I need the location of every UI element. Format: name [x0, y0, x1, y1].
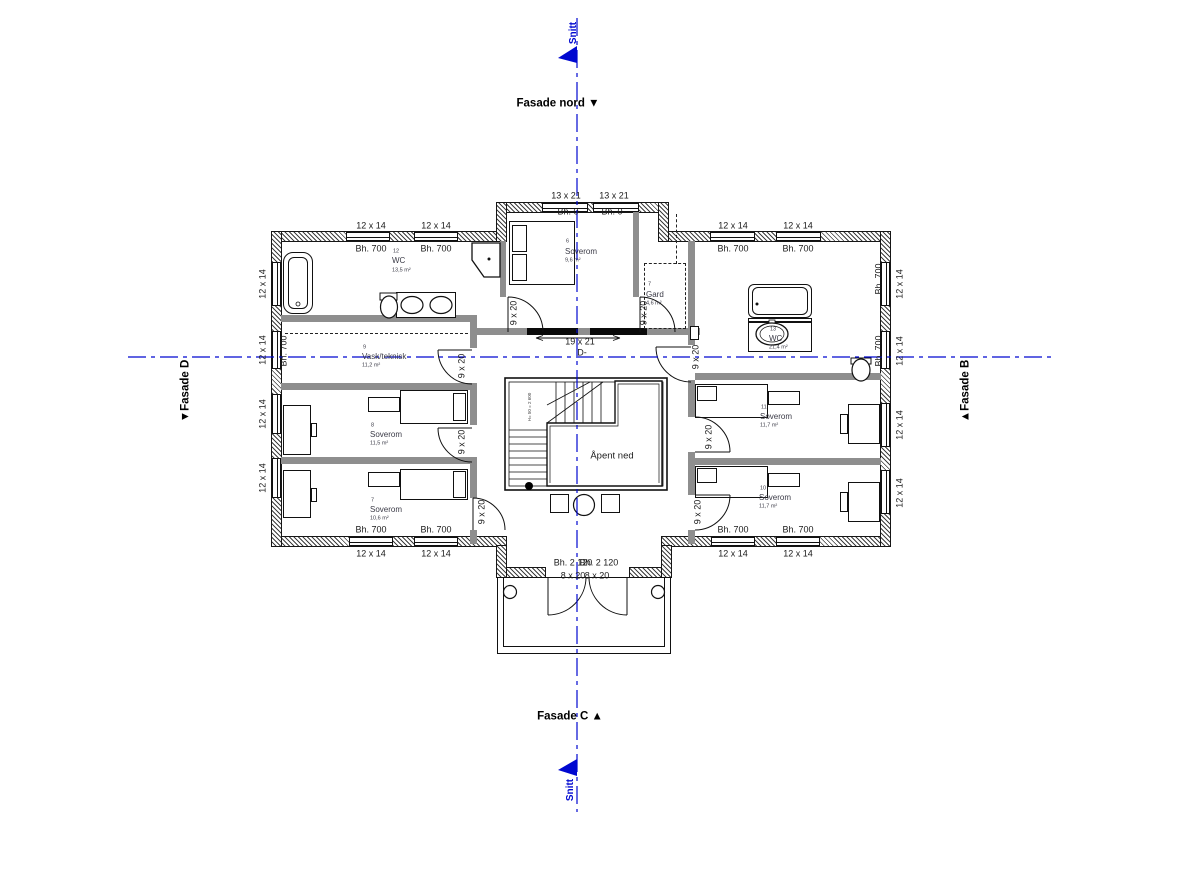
wall-interior	[688, 452, 695, 495]
window	[776, 537, 820, 546]
dim-sill: Bh. 700	[717, 245, 748, 254]
bathtub-inner	[288, 257, 308, 309]
wall-exterior	[497, 203, 506, 241]
room-area: 4,6 m²	[646, 301, 662, 307]
sliding-door-panel	[527, 328, 578, 335]
window	[349, 537, 393, 546]
dim-door: 9 x 20	[692, 345, 701, 370]
label-fasade-nord: Fasade nord ▼	[517, 98, 600, 110]
dim-window: 12 x 14	[896, 410, 905, 440]
nightstand	[368, 472, 400, 487]
wall-interior	[695, 373, 881, 380]
wall-exterior	[662, 546, 671, 577]
window	[881, 470, 890, 514]
room-name: Soverom	[759, 494, 791, 502]
dim-sill: Bh. 700	[355, 245, 386, 254]
label-stair-note: H= 50 = 2 600	[528, 393, 533, 422]
room-number: 6	[566, 239, 569, 245]
sliding-door-panel	[590, 328, 647, 335]
wall-interior	[633, 212, 639, 297]
vanity-double	[396, 292, 456, 318]
window	[414, 232, 458, 241]
label-apent-ned: Åpent ned	[590, 451, 633, 461]
dim-window: 13 x 21	[551, 192, 581, 201]
dim-window: 12 x 14	[718, 222, 748, 231]
stair-treads	[509, 382, 603, 479]
window	[711, 537, 755, 546]
window	[272, 262, 281, 306]
dim-window: 12 x 14	[783, 550, 813, 559]
wall-interior	[281, 383, 470, 390]
dim-door: 8 x 20	[561, 572, 586, 581]
label-fasade-b: ▲Fasade B	[960, 360, 972, 423]
dim-window: 12 x 14	[896, 336, 905, 366]
dresser-knob	[311, 488, 317, 502]
radiator	[690, 326, 699, 340]
dim-opening: 19 x 21	[565, 338, 595, 347]
wall-exterior	[659, 203, 668, 241]
nightstand	[768, 391, 800, 405]
dim-door: 9 x 20	[458, 354, 467, 379]
dim-sill: Bh. 0	[601, 208, 622, 217]
dim-window: 12 x 14	[896, 478, 905, 508]
window	[272, 458, 281, 498]
dim-door: 9 x 20	[478, 500, 487, 525]
wall-interior	[470, 328, 700, 335]
room-name: Gard	[646, 291, 664, 299]
dim-sill: Bh. 700	[782, 526, 813, 535]
pillow	[453, 471, 466, 498]
pillow	[512, 254, 527, 281]
dim-sill: Bh. 0	[557, 208, 578, 217]
dim-window: 12 x 14	[259, 269, 268, 299]
pillow	[453, 393, 466, 421]
window	[272, 394, 281, 434]
section-arrow-bottom	[558, 759, 577, 776]
plan-overlay	[0, 0, 1184, 876]
room-name: Soverom	[565, 248, 597, 256]
chair	[840, 492, 848, 512]
room-number: 9	[363, 345, 366, 351]
dim-opening-id: D-	[577, 349, 587, 358]
room-area: 11,7 m²	[760, 423, 778, 429]
window	[346, 232, 390, 241]
label-fasade-c: Fasade C ▲	[537, 711, 603, 723]
section-arrow-top	[558, 46, 577, 63]
stool	[601, 494, 620, 513]
floor-plan: Fasade nord ▼Fasade C ▲▼Fasade D▲Fasade …	[0, 0, 1184, 876]
dim-sill: Bh. 700	[782, 245, 813, 254]
dim-sill: Bh. 700	[717, 526, 748, 535]
desk	[848, 482, 880, 522]
wall-interior	[500, 241, 506, 297]
dim-door: 9 x 20	[705, 425, 714, 450]
wall-interior	[470, 530, 477, 544]
dashed-line	[285, 333, 468, 334]
dim-door: 9 x 20	[458, 430, 467, 455]
room-name: Vask/teknisk	[362, 353, 406, 361]
room-area: 13,5 m²	[392, 268, 411, 274]
room-number: 7	[371, 498, 374, 504]
wall-interior	[688, 380, 695, 417]
dim-sill: Bh. 700	[355, 526, 386, 535]
room-number: 7	[648, 282, 651, 288]
room-name: Soverom	[370, 506, 402, 514]
dresser	[283, 470, 311, 518]
room-name: WC	[769, 335, 782, 343]
room-area: 10,6 m²	[370, 516, 389, 522]
dim-window: 12 x 14	[718, 550, 748, 559]
dim-window: 12 x 14	[896, 269, 905, 299]
dim-door: 9 x 20	[694, 500, 703, 525]
pillow	[697, 468, 717, 483]
wall-interior	[695, 458, 881, 465]
dashed-line	[676, 214, 677, 264]
dim-window: 12 x 14	[259, 463, 268, 493]
window	[776, 232, 821, 241]
pillow	[697, 386, 717, 401]
round-table	[574, 495, 595, 516]
pillow	[512, 225, 527, 252]
room-area: 11,2 m²	[362, 363, 380, 369]
desk	[848, 404, 880, 444]
room-number: 8	[371, 423, 374, 429]
room-name: Soverom	[370, 431, 402, 439]
wall-interior	[688, 530, 695, 544]
room-name: Soverom	[760, 413, 792, 421]
nightstand	[368, 397, 400, 412]
label-fasade-d: ▼Fasade D	[180, 360, 192, 423]
room-area: 21,4 m²	[769, 345, 788, 351]
wall-exterior	[497, 546, 506, 577]
dim-window: 12 x 14	[259, 335, 268, 365]
dresser	[283, 405, 311, 455]
dim-sill: Bh. 700	[420, 526, 451, 535]
room-name: WC	[392, 257, 405, 265]
stool	[550, 494, 569, 513]
label-snitt-top: Snitt	[569, 22, 579, 44]
stair-start-dot	[525, 482, 533, 490]
room-number: 11	[761, 405, 767, 411]
dim-sill: Bh. 700	[875, 335, 884, 366]
wall-interior	[470, 383, 477, 425]
window	[710, 232, 755, 241]
dim-window: 12 x 14	[356, 550, 386, 559]
dim-window: 12 x 14	[421, 550, 451, 559]
nightstand	[768, 473, 800, 487]
dim-sill: Bh. 700	[280, 335, 289, 366]
window	[414, 537, 458, 546]
room-number: 13	[770, 327, 776, 333]
room-area: 11,7 m²	[759, 504, 777, 510]
dim-window: 13 x 21	[599, 192, 629, 201]
wall-interior	[281, 457, 470, 464]
dim-door: 9 x 20	[510, 301, 519, 326]
dim-window: 12 x 14	[783, 222, 813, 231]
room-number: 10	[760, 486, 766, 492]
chair	[840, 414, 848, 434]
dim-door: 8 x 20	[585, 572, 610, 581]
room-area: 9,6 m²	[565, 258, 581, 264]
bathtub-inner	[752, 287, 808, 315]
room-area: 11,5 m²	[370, 441, 388, 447]
dim-sill: Bh. 700	[875, 263, 884, 294]
dim-sill: Bh. 2 120	[580, 559, 619, 568]
dim-window: 12 x 14	[356, 222, 386, 231]
balcony-railing-inner	[503, 577, 665, 647]
dim-sill: Bh. 700	[420, 245, 451, 254]
room-number: 12	[393, 249, 399, 255]
dresser-knob	[311, 423, 317, 437]
label-snitt-bottom: Snitt	[566, 779, 576, 801]
shower-corner	[472, 243, 500, 277]
wall-interior	[470, 457, 477, 498]
dim-window: 12 x 14	[259, 399, 268, 429]
dim-window: 12 x 14	[421, 222, 451, 231]
window	[881, 403, 890, 447]
